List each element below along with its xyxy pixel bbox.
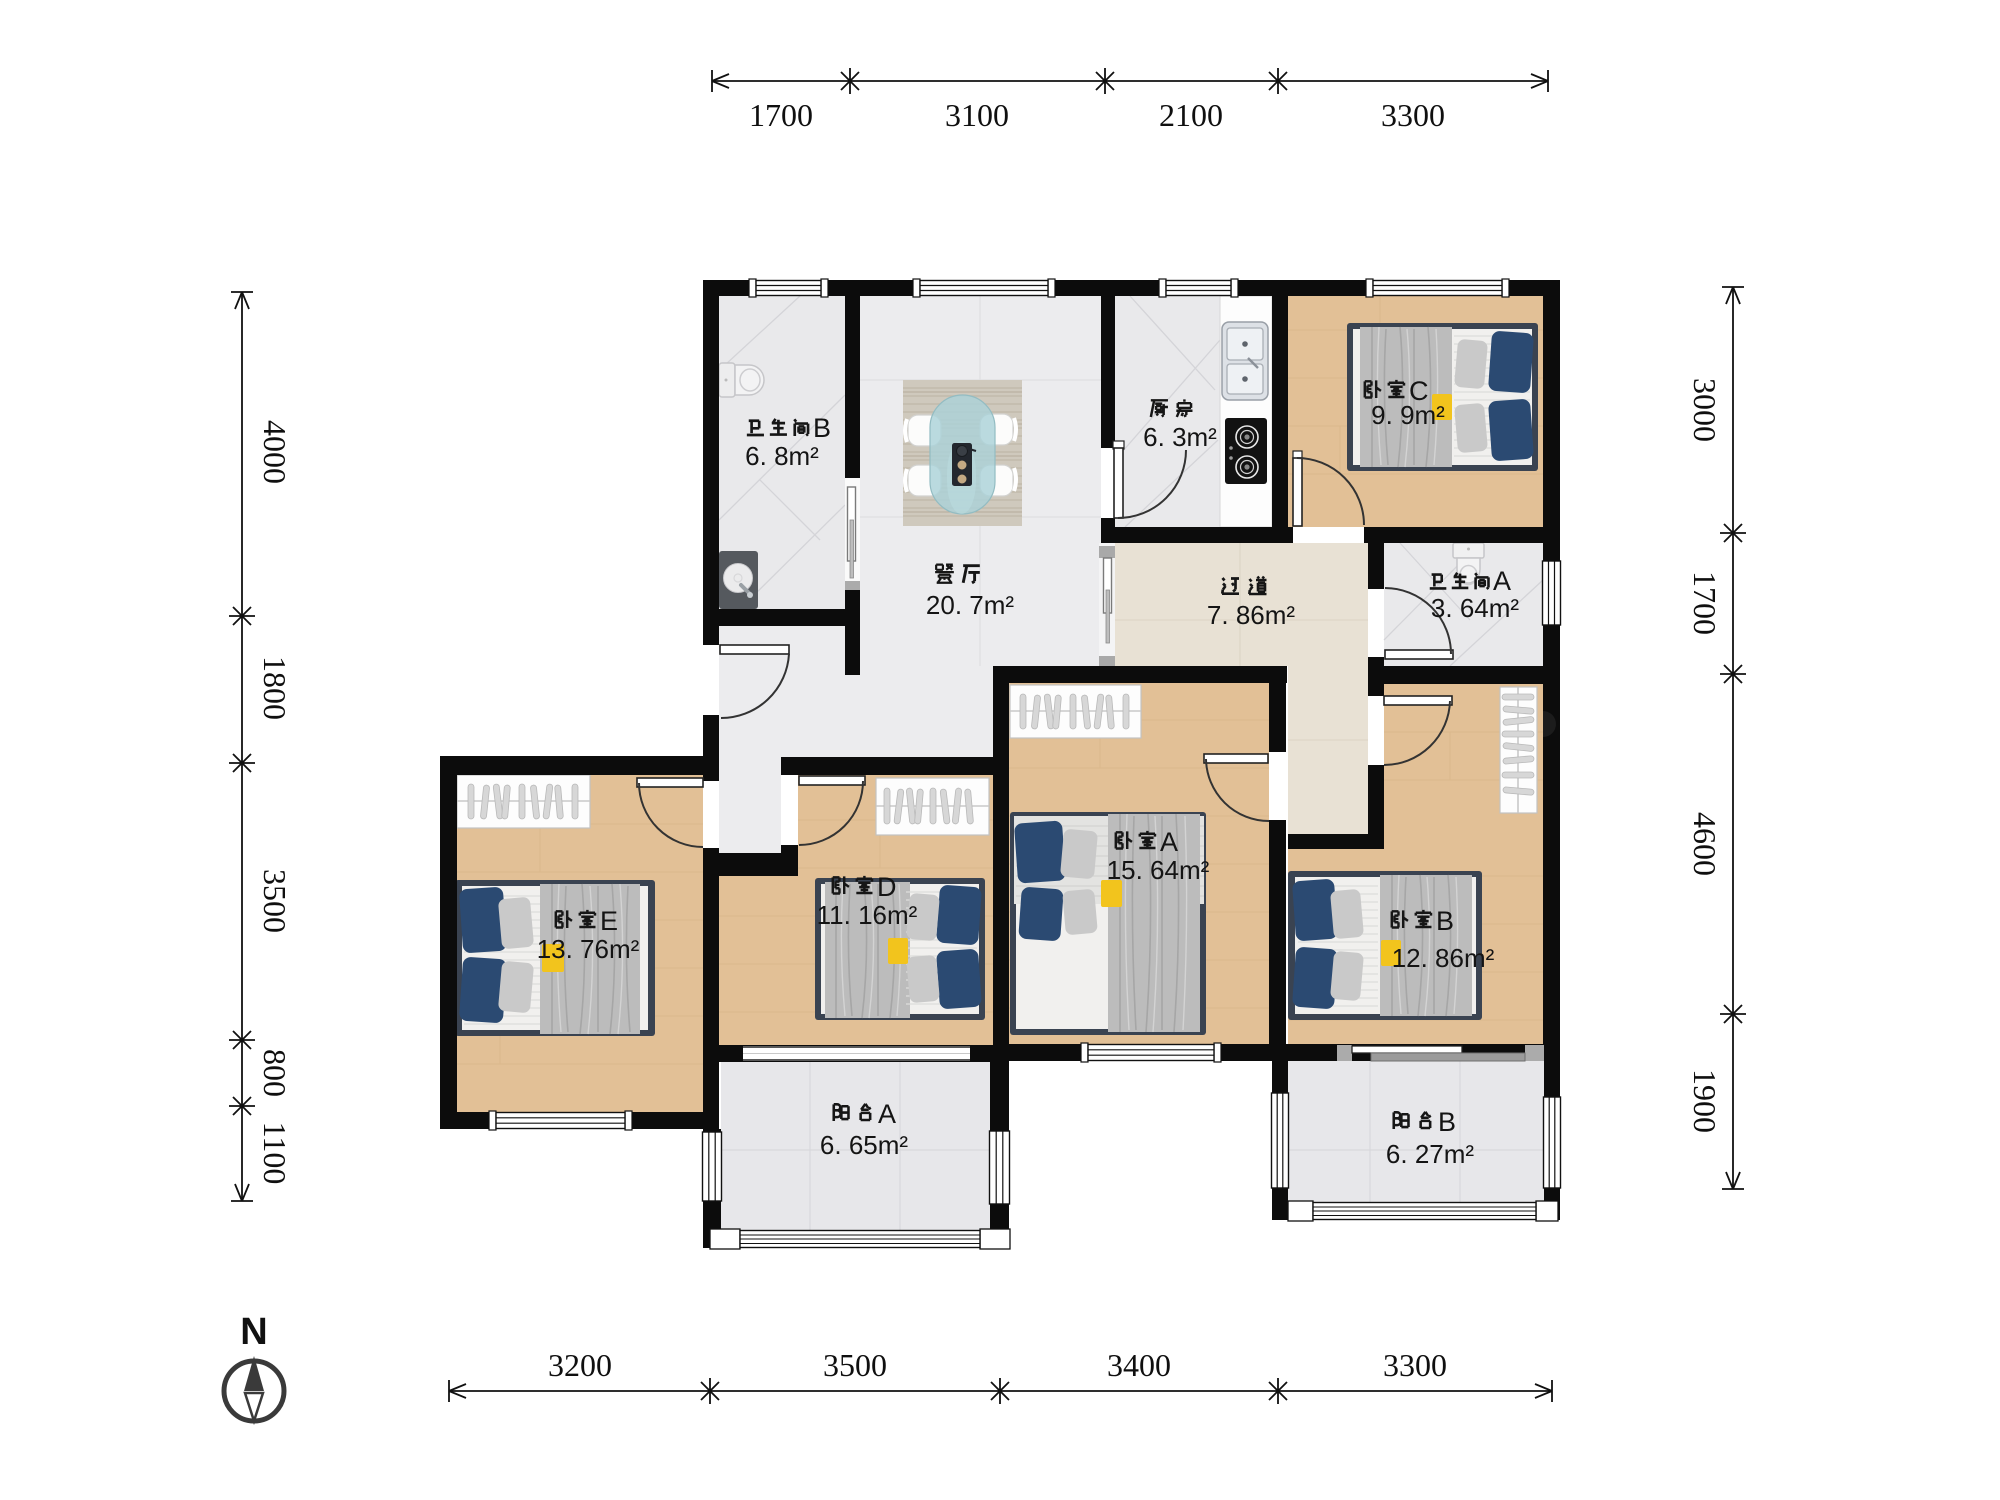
svg-text:A: A <box>878 1099 896 1129</box>
svg-text:B: B <box>1436 906 1454 936</box>
svg-text:12. 86m²: 12. 86m² <box>1392 943 1495 973</box>
svg-text:6. 3m²: 6. 3m² <box>1143 422 1217 452</box>
svg-text:A: A <box>1160 827 1178 857</box>
svg-text:3200: 3200 <box>548 1347 612 1383</box>
svg-text:15. 64m²: 15. 64m² <box>1107 855 1210 885</box>
svg-text:6. 27m²: 6. 27m² <box>1386 1139 1474 1169</box>
svg-text:1900: 1900 <box>1687 1069 1723 1133</box>
svg-text:3000: 3000 <box>1687 378 1723 442</box>
svg-text:4000: 4000 <box>257 420 293 484</box>
svg-text:13. 76m²: 13. 76m² <box>537 934 640 964</box>
svg-text:1800: 1800 <box>257 656 293 720</box>
svg-text:3. 64m²: 3. 64m² <box>1431 593 1519 623</box>
svg-text:N: N <box>240 1311 267 1353</box>
svg-text:3100: 3100 <box>945 97 1009 133</box>
svg-text:6. 65m²: 6. 65m² <box>820 1130 908 1160</box>
svg-text:3500: 3500 <box>257 869 293 933</box>
svg-text:2100: 2100 <box>1159 97 1223 133</box>
svg-text:B: B <box>813 413 831 443</box>
svg-text:9. 9m²: 9. 9m² <box>1371 400 1445 430</box>
svg-text:1700: 1700 <box>1687 571 1723 635</box>
svg-text:1100: 1100 <box>257 1122 293 1185</box>
svg-text:D: D <box>877 872 897 902</box>
svg-text:3300: 3300 <box>1383 1347 1447 1383</box>
svg-text:E: E <box>600 906 618 936</box>
svg-text:B: B <box>1438 1107 1456 1137</box>
svg-text:4600: 4600 <box>1687 812 1723 876</box>
svg-text:11. 16m²: 11. 16m² <box>817 900 918 930</box>
svg-text:3500: 3500 <box>823 1347 887 1383</box>
svg-text:3300: 3300 <box>1381 97 1445 133</box>
svg-text:A: A <box>1493 566 1511 596</box>
svg-text:800: 800 <box>257 1049 293 1097</box>
svg-text:7. 86m²: 7. 86m² <box>1207 600 1295 630</box>
svg-text:3400: 3400 <box>1107 1347 1171 1383</box>
svg-text:1700: 1700 <box>749 97 813 133</box>
svg-text:20. 7m²: 20. 7m² <box>926 590 1014 620</box>
svg-text:6. 8m²: 6. 8m² <box>745 441 819 471</box>
